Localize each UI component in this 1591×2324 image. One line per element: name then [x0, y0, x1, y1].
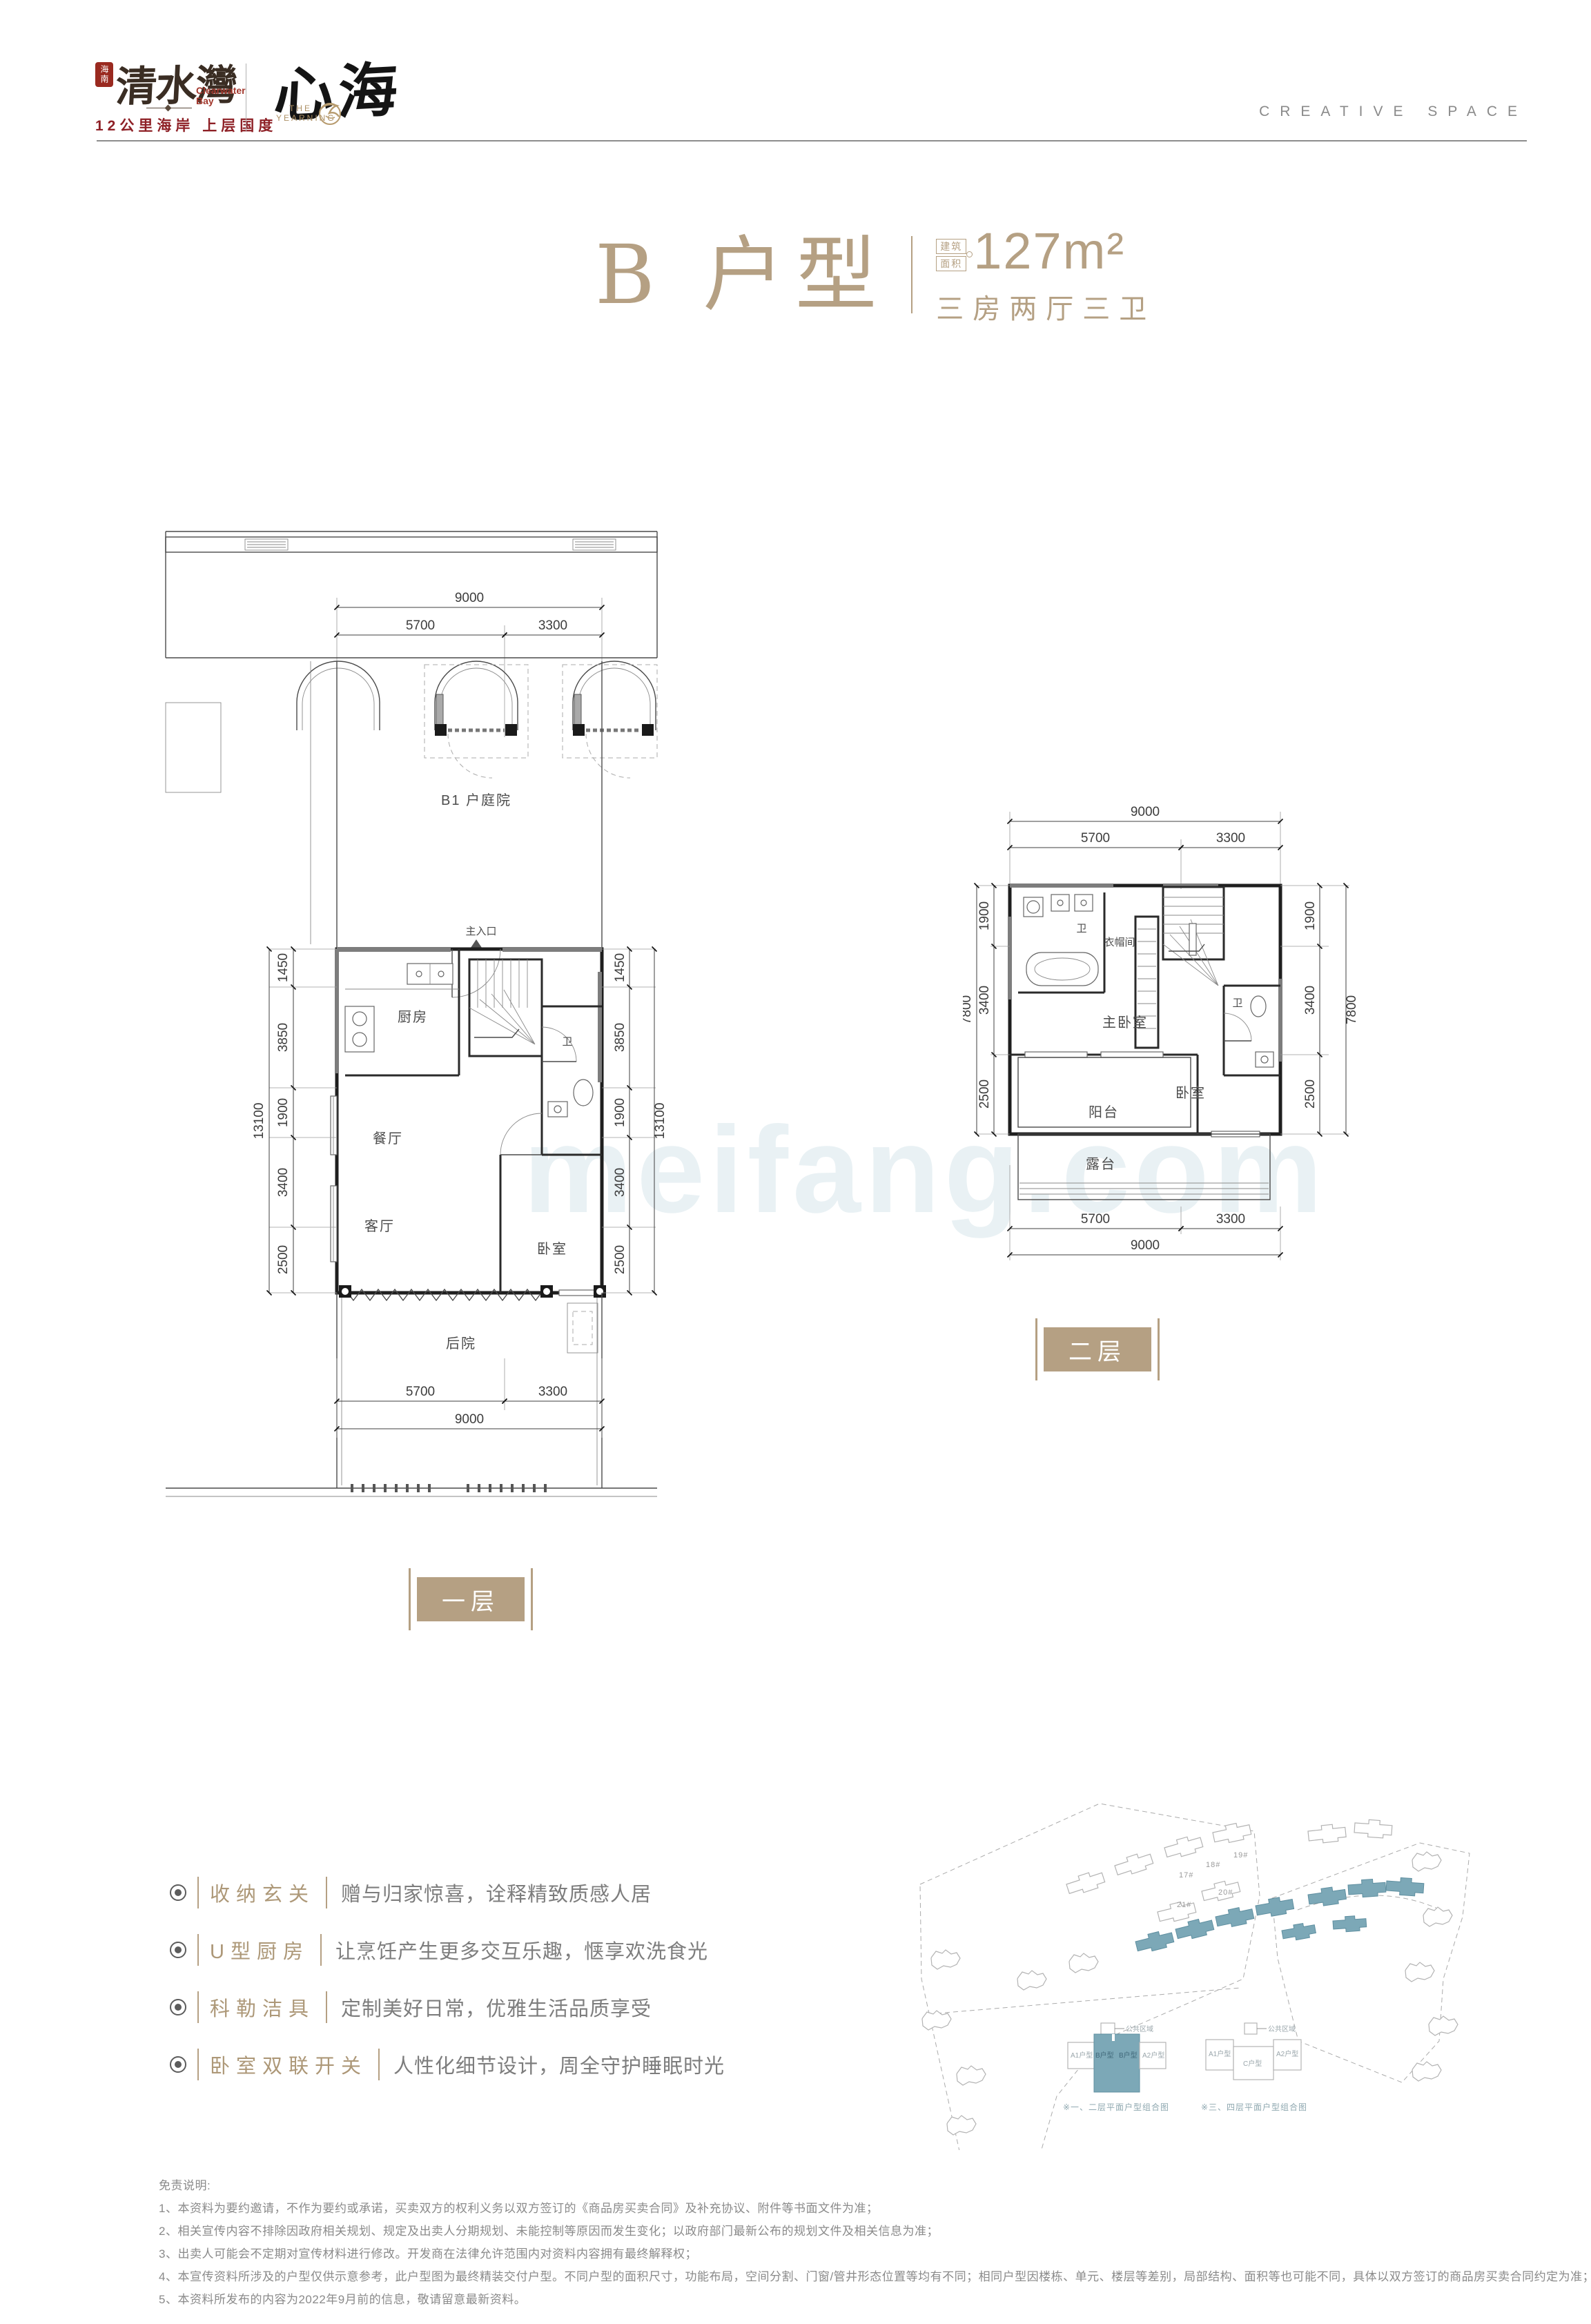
brand2-sub-line1: THE: [276, 104, 312, 113]
level1-badge: 一层: [417, 1577, 525, 1621]
feature-divider: [197, 1991, 199, 2023]
floorplan-level1: 9000 5700 3300: [138, 530, 683, 1545]
layout-text: 三房两厅三卫: [936, 286, 1155, 326]
plan2-dims-right: 1900 3400 2500 7800: [1280, 886, 1359, 1134]
brand-en-line2: Bay: [196, 96, 246, 106]
plan2-dims-top: 9000 5700 3300: [1010, 805, 1280, 889]
dim-label: 1450: [276, 953, 291, 982]
room-label-entrance: 主入口: [465, 926, 496, 937]
dim-label: 3300: [1216, 1212, 1245, 1227]
plan1-windows: [331, 1096, 598, 1296]
room-label-courtyard: B1 户庭院: [441, 792, 511, 808]
room-label-master: 主卧室: [1102, 1015, 1148, 1031]
site-diagram-1: 公共区域 A1户型 B户型 B户型 A2户型 ※一、二层平面户型组合图: [1063, 2023, 1169, 2112]
building-label: 21#: [1177, 1901, 1191, 1909]
site-boundaries: [920, 1804, 1470, 2150]
dim-label: 7800: [1345, 995, 1359, 1024]
plan1-dims-right: 1450 3850 1900 3400 2500 13100: [602, 949, 667, 1293]
feature-divider: [320, 1934, 322, 1966]
dim-label: 3400: [613, 1168, 627, 1197]
brand-logo-right: 心海 THE YEARNING: [271, 54, 429, 133]
feature-desc: 赠与归家惊喜，诠释精致质感人居: [341, 1878, 652, 1907]
plan2-bath1: 卫: [1018, 892, 1104, 993]
dim-label: 1900: [276, 1098, 291, 1127]
building-label: 18#: [1206, 1861, 1220, 1869]
bullet-icon: [170, 1999, 186, 2015]
feature-divider: [197, 2049, 199, 2080]
badge-line: [409, 1568, 411, 1630]
brand2-subtitle: THE YEARNING: [276, 104, 312, 123]
floorplan-level2: 9000 5700 3300 卫: [963, 779, 1363, 1276]
building-label: 19#: [1233, 1851, 1248, 1859]
feature-divider: [326, 1877, 327, 1908]
plan1-courtyard: B1 户庭院 主入口: [311, 661, 602, 949]
dim-label: 3300: [538, 618, 567, 633]
room-label-bedroom: 卧室: [537, 1241, 567, 1257]
ornament-divider-icon: [146, 108, 192, 112]
diagram2-caption: ※三、四层平面户型组合图: [1201, 2102, 1307, 2112]
brand2-sub-line2: YEARNING: [276, 113, 312, 123]
plan2-dims-bottom: 5700 3300 9000: [1010, 1165, 1280, 1260]
plan2-balcony: 阳台: [1018, 1057, 1191, 1127]
level2-badge: 二层: [1044, 1327, 1151, 1371]
plan2-stairs: [1163, 887, 1224, 986]
dim-label: 1900: [977, 901, 992, 930]
feature-list: 收纳玄关 赠与归家惊喜，诠释精致质感人居 U型厨房 让烹饪产生更多交互乐趣，惬享…: [170, 1875, 725, 2082]
disclaimer-title: 免责说明:: [159, 2174, 1591, 2197]
area-value: 127m²: [973, 227, 1125, 275]
feature-desc: 让烹饪产生更多交互乐趣，惬享欢洗食光: [335, 1935, 708, 1964]
brand-tagline: 12公里海岸 上层国度: [95, 115, 277, 135]
plan1-dims-left: 1450 3850 1900 3400 2500 13100: [252, 949, 337, 1293]
brand-logo-left: 海南 清水灣 Clearwater Bay 12公里海岸 上层国度: [95, 58, 254, 134]
dim-label: 5700: [406, 1385, 435, 1399]
site-plan: 17# 18# 19# 20# 21# 公共区域 A1户型 B户型 B户型 A2…: [894, 1750, 1519, 2150]
diagram2-c-label: C户型: [1243, 2059, 1262, 2068]
dim-label: 7800: [963, 995, 974, 1024]
room-label-bath2: 卫: [1232, 997, 1242, 1009]
plan2-bath2: 卫: [1224, 986, 1280, 1075]
room-label-bath1: 卫: [1076, 923, 1086, 935]
level1-badge-group: 一层: [409, 1568, 533, 1630]
disclaimer-block: 免责说明: 1、本资料为要约邀请，不作为要约或承诺，买卖双方的权利义务以双方签订…: [159, 2174, 1591, 2311]
building-label: 20#: [1218, 1888, 1233, 1897]
feature-title: U型厨房: [210, 1935, 309, 1964]
bullet-icon: [170, 1884, 186, 1901]
brochure-page: 海南 清水灣 Clearwater Bay 12公里海岸 上层国度 心海 THE…: [0, 0, 1591, 2324]
badge-line: [1035, 1318, 1037, 1380]
unit-title-block: B 户型 建筑 面积 127m² 三房两厅三卫: [595, 219, 1155, 330]
feature-divider: [197, 1934, 199, 1966]
dim-label: 9000: [1131, 805, 1160, 819]
area-row: 建筑 面积 127m²: [936, 227, 1155, 275]
brand-en-line1: Clearwater: [196, 86, 246, 96]
diagram1-b-label2: B户型: [1119, 2051, 1138, 2060]
room-label-backyard: 后院: [446, 1336, 476, 1351]
diagram1-common-label: 公共区域: [1126, 2024, 1153, 2033]
dim-label: 13100: [252, 1103, 266, 1140]
brand-name-en: Clearwater Bay: [196, 86, 246, 106]
plan1-arches: [166, 658, 657, 792]
dim-label: 2500: [613, 1245, 627, 1274]
room-label-living: 客厅: [364, 1218, 395, 1234]
header-rule: [97, 140, 1527, 141]
unit-name: B 户型: [595, 219, 888, 330]
diagram2-common-label: 公共区域: [1268, 2024, 1296, 2033]
plan1-bedroom: 卧室: [500, 1113, 567, 1293]
dim-label: 9000: [455, 591, 484, 605]
room-label-terrace: 露台: [1086, 1156, 1116, 1172]
plan1-bath: 卫: [542, 1006, 602, 1155]
diagram2-a2-label: A2户型: [1276, 2049, 1298, 2058]
area-seal-dot-icon: [966, 251, 973, 257]
feature-row: 科勒洁具 定制美好日常，优雅生活品质享受: [170, 1989, 725, 2025]
building-label: 17#: [1179, 1871, 1193, 1879]
plan1-house: 厨房 卫 餐厅 客厅: [331, 947, 606, 1300]
dim-label: 2500: [977, 1080, 992, 1109]
diagram1-a2-label: A2户型: [1142, 2051, 1164, 2060]
dim-label: 3300: [1216, 831, 1245, 846]
feature-desc: 人性化细节设计，周全守护睡眠时光: [393, 2050, 725, 2079]
hainan-seal-icon: 海南: [95, 62, 113, 87]
title-divider: [911, 236, 912, 313]
bullet-icon: [170, 1942, 186, 1958]
badge-line: [531, 1568, 533, 1630]
feature-title: 卧室双联开关: [210, 2050, 367, 2079]
area-label-2: 面积: [936, 256, 966, 271]
room-label-balcony: 阳台: [1089, 1104, 1119, 1120]
bullet-icon: [170, 2056, 186, 2073]
dim-label: 3850: [276, 1023, 291, 1052]
logo-divider: [246, 64, 246, 131]
area-label-1: 建筑: [936, 239, 966, 254]
disclaimer-line: 3、出卖人可能会不定期对宣传材料进行修改。开发商在法律允许范围内对资料内容拥有最…: [159, 2243, 1591, 2265]
dim-label: 3400: [276, 1168, 291, 1197]
feature-divider: [197, 1877, 199, 1908]
plan2-terrace: 露台: [1018, 1134, 1270, 1200]
dim-label: 2500: [1303, 1080, 1318, 1109]
plan1-dims-bottom: 5700 3300 9000: [337, 1358, 602, 1438]
dim-label: 1900: [613, 1098, 627, 1127]
room-label-bath: 卫: [562, 1036, 572, 1048]
level2-badge-group: 二层: [1035, 1318, 1160, 1380]
diagram2-a1-label: A1户型: [1209, 2049, 1231, 2058]
room-label-kitchen: 厨房: [398, 1009, 428, 1025]
feature-divider: [326, 1991, 327, 2023]
plan2-dims-left: 1900 3400 2500 7800: [963, 886, 1010, 1134]
dim-label: 1900: [1303, 901, 1318, 930]
site-buildings-gray: [922, 1819, 1458, 2135]
feature-row: 卧室双联开关 人性化细节设计，周全守护睡眠时光: [170, 2047, 725, 2082]
disclaimer-line: 5、本资料所发布的内容为2022年9月前的信息，敬请留意最新资料。: [159, 2288, 1591, 2311]
dim-label: 1450: [613, 953, 627, 982]
plan2-house: 卫 衣帽间: [1008, 883, 1282, 1137]
room-label-cloak: 衣帽间: [1104, 937, 1135, 948]
dim-label: 3300: [538, 1385, 567, 1399]
feature-row: U型厨房 让烹饪产生更多交互乐趣，惬享欢洗食光: [170, 1932, 725, 1968]
dim-label: 13100: [653, 1103, 667, 1140]
dim-label: 5700: [406, 618, 435, 633]
dim-label: 5700: [1081, 1212, 1110, 1227]
plan2-bedroom: 卧室: [1175, 1055, 1260, 1137]
badge-line: [1158, 1318, 1160, 1380]
diagram1-a1-label: A1户型: [1071, 2051, 1093, 2060]
dim-label: 9000: [455, 1412, 484, 1427]
feature-desc: 定制美好日常，优雅生活品质享受: [341, 1993, 652, 2022]
disclaimer-line: 2、相关宣传内容不排除因政府相关规划、规定及出卖人分期规划、未能控制等原因而发生…: [159, 2220, 1591, 2243]
dim-label: 2500: [276, 1245, 291, 1274]
diagram1-b-label: B户型: [1095, 2051, 1114, 2060]
yearning-bird-icon: [315, 98, 345, 128]
dim-label: 3400: [1303, 986, 1318, 1015]
plan1-stairs: [469, 959, 542, 1056]
area-label-box: 建筑 面积: [936, 239, 966, 275]
room-label-dining: 餐厅: [373, 1131, 403, 1146]
dim-label: 5700: [1081, 831, 1110, 846]
plan1-corridor: [166, 531, 657, 658]
disclaimer-line: 1、本资料为要约邀请，不作为要约或承诺，买卖双方的权利义务以双方签订的《商品房买…: [159, 2197, 1591, 2220]
feature-title: 收纳玄关: [210, 1878, 315, 1907]
dim-label: 3400: [977, 986, 992, 1015]
unit-meta: 建筑 面积 127m² 三房两厅三卫: [936, 219, 1155, 330]
site-diagram-2: 公共区域 A1户型 C户型 A2户型 ※三、四层平面户型组合图: [1201, 2023, 1307, 2112]
dim-label: 3850: [613, 1023, 627, 1052]
disclaimer-line: 4、本宣传资料所涉及的户型仅供示意参考，此户型图为最终精装交付户型。不同户型的面…: [159, 2265, 1591, 2288]
dim-label: 9000: [1131, 1238, 1160, 1253]
site-building-labels: 17# 18# 19# 20# 21#: [1177, 1851, 1248, 1909]
feature-title: 科勒洁具: [210, 1993, 315, 2022]
feature-row: 收纳玄关 赠与归家惊喜，诠释精致质感人居: [170, 1875, 725, 1911]
feature-divider: [378, 2049, 380, 2080]
diagram1-caption: ※一、二层平面户型组合图: [1063, 2102, 1169, 2112]
creative-space-text: CREATIVE SPACE: [1259, 104, 1527, 120]
plan1-dims-top: 9000 5700 3300: [337, 591, 602, 737]
